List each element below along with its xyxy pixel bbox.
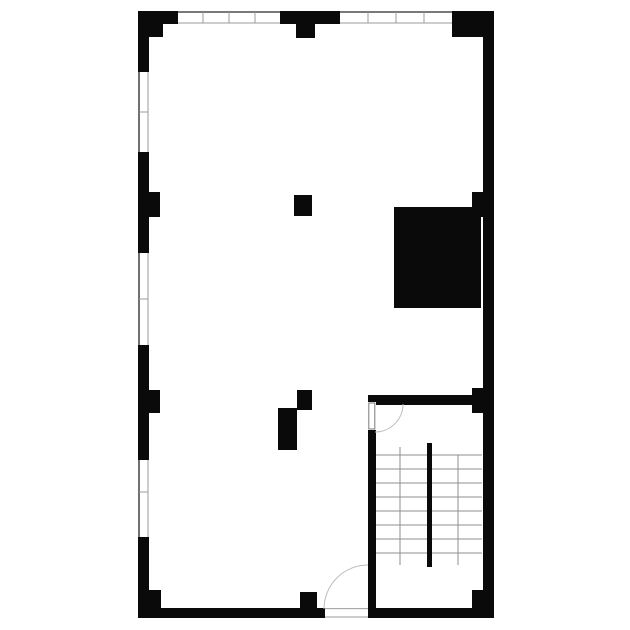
column-stair-corner (472, 388, 494, 413)
column-bottom-right (472, 590, 494, 618)
shaft-block (394, 207, 481, 308)
right-wall (483, 11, 494, 618)
floor-plan (0, 0, 630, 630)
stairwell-door-leaf (369, 403, 375, 429)
stair-divider (427, 443, 432, 567)
column-lower-center-a (297, 390, 312, 410)
column-bottom-left (138, 590, 161, 618)
canvas-background (0, 0, 630, 630)
column-top-left (138, 11, 163, 37)
column-top-center (296, 11, 315, 38)
stairwell-left-wall-lower (368, 430, 376, 610)
column-left-lower (138, 390, 160, 413)
floor-plan-svg (0, 0, 630, 630)
column-bottom-center (300, 592, 317, 618)
column-center (294, 195, 312, 216)
stairwell-top-wall (368, 395, 472, 405)
column-left-upper (138, 192, 160, 217)
bottom-wall-left-segment (138, 608, 325, 618)
column-lower-center-b (278, 408, 297, 450)
column-top-right (452, 11, 494, 37)
